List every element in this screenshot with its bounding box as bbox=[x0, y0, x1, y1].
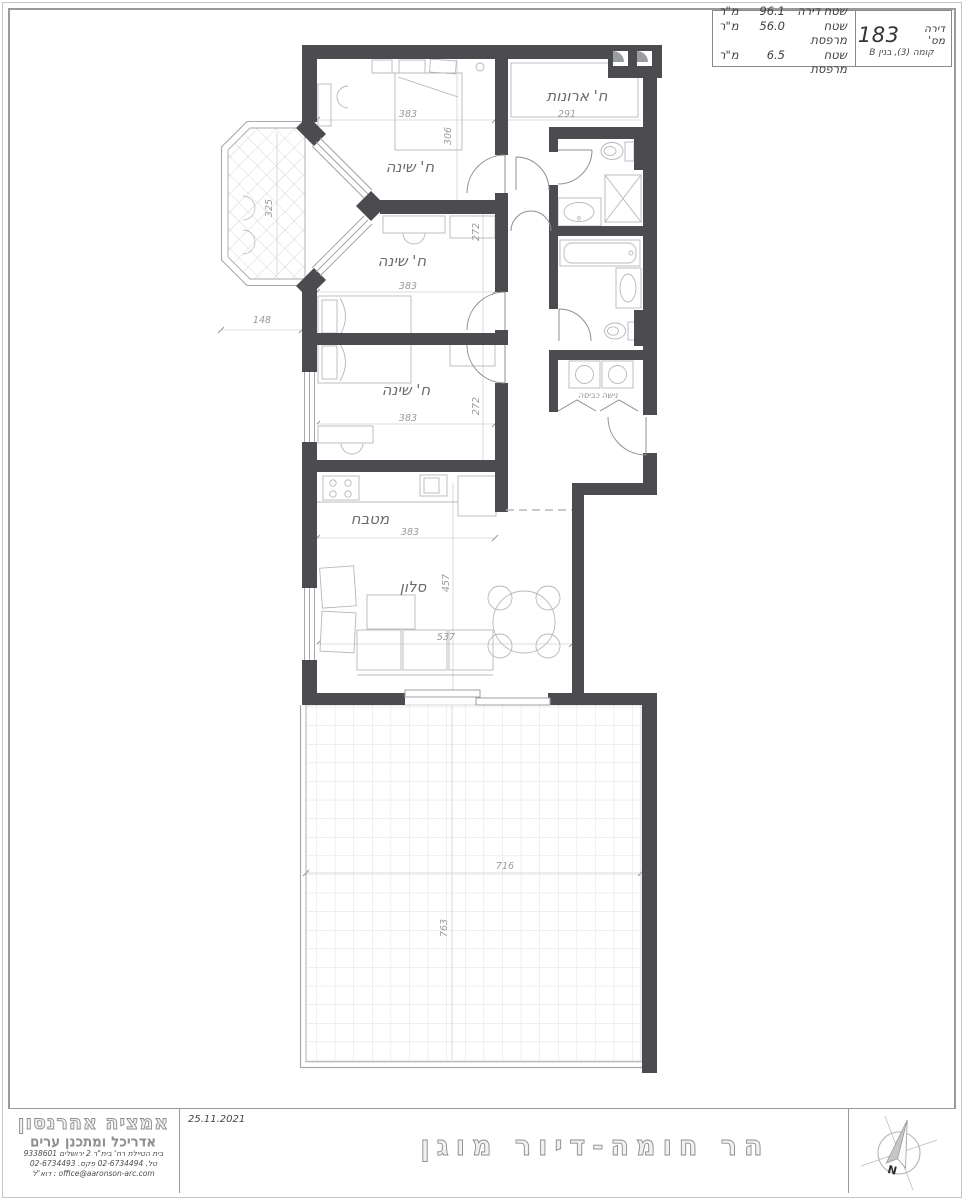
floor-plan-drawing: ח' שינה 383 306 ח' ארונות 291 ח' שינה 38… bbox=[0, 0, 964, 1100]
firm-name: אמציה אהרנסון bbox=[8, 1113, 179, 1134]
bedroom1-door bbox=[467, 155, 505, 193]
bay-window-upper bbox=[312, 138, 372, 198]
balcony-height-dim: 325 bbox=[264, 199, 275, 217]
firm-role: אדריכל ומתכנן ערים bbox=[8, 1134, 179, 1149]
bedroom2-door bbox=[467, 292, 505, 330]
laundry-bifold-doors bbox=[558, 400, 638, 411]
firm-address: בית הטיילת רח' בית"ר 2 ירושלים 9338601 bbox=[8, 1149, 179, 1159]
kitchen-counter bbox=[317, 475, 496, 516]
bedroom2-height-dim: 272 bbox=[471, 223, 482, 241]
laundry-machines bbox=[569, 361, 633, 388]
bedroom2-width-dim: 383 bbox=[399, 281, 417, 292]
living-furniture bbox=[320, 566, 560, 675]
closet-room-dim: 291 bbox=[558, 109, 576, 120]
compass-cell: N bbox=[848, 1109, 956, 1193]
terrace-width-dim: 716 bbox=[496, 861, 514, 872]
living-width-dim: 537 bbox=[437, 632, 455, 643]
title-block: אמציה אהרנסון אדריכל ומתכנן ערים בית הטי… bbox=[8, 1108, 956, 1192]
firm-phone: טל. 02-6734494 פקס. 02-6734493 bbox=[8, 1159, 179, 1169]
firm-email: office@aaronson-arc.com : דוא"ל bbox=[8, 1169, 179, 1179]
north-arrow: N bbox=[849, 1109, 956, 1193]
drawing-date: 25.11.2021 bbox=[188, 1114, 245, 1125]
bedroom3-label: ח' שינה bbox=[382, 381, 431, 399]
living-height-dim: 457 bbox=[441, 574, 452, 592]
bedroom3-width-dim: 383 bbox=[399, 413, 417, 424]
bedroom1-chair bbox=[337, 86, 348, 108]
bath1-fixtures bbox=[558, 142, 641, 226]
bay-window-lower bbox=[312, 216, 372, 276]
balcony-width-dim: 148 bbox=[253, 315, 271, 326]
terrace-height-dim: 763 bbox=[439, 919, 450, 937]
title-center-cell: 25.11.2021 הר חומה-דיור מוגן bbox=[180, 1109, 848, 1193]
bath2-door bbox=[559, 309, 591, 341]
bedroom1-height-dim: 306 bbox=[443, 127, 454, 145]
bedroom2-label: ח' שינה bbox=[378, 252, 427, 270]
closet-door bbox=[516, 157, 549, 190]
terrace bbox=[301, 705, 643, 1068]
bedroom1-label: ח' שינה bbox=[386, 158, 435, 176]
bath1-door bbox=[558, 150, 592, 184]
bedroom1-bed bbox=[372, 59, 484, 150]
bedroom1-width-dim: 383 bbox=[399, 109, 417, 120]
bedroom3-door bbox=[467, 345, 505, 383]
bedroom3-height-dim: 272 bbox=[471, 397, 482, 415]
balcony-bay bbox=[222, 87, 348, 286]
north-label: N bbox=[886, 1163, 898, 1178]
kitchen-dim: 383 bbox=[401, 527, 419, 538]
project-title: הר חומה-דיור מוגן bbox=[360, 1131, 830, 1162]
architect-stamp: אמציה אהרנסון אדריכל ומתכנן ערים בית הטי… bbox=[8, 1109, 180, 1193]
kitchen-label: מטבח bbox=[351, 510, 390, 528]
bath2-fixtures bbox=[560, 240, 641, 340]
closet-room-label: ח' ארונות bbox=[546, 87, 607, 105]
laundry-label: נישה כביסה bbox=[578, 391, 618, 400]
corridor-arch bbox=[511, 211, 551, 231]
living-label: סלון bbox=[400, 578, 428, 596]
floor-plan-page: מ"ר 96.1 שטח דירה מ"ר 56.0 שטח מרפסת מ"ר… bbox=[0, 0, 964, 1200]
entry-door bbox=[608, 417, 646, 455]
terrace-sliding-door bbox=[405, 690, 550, 705]
